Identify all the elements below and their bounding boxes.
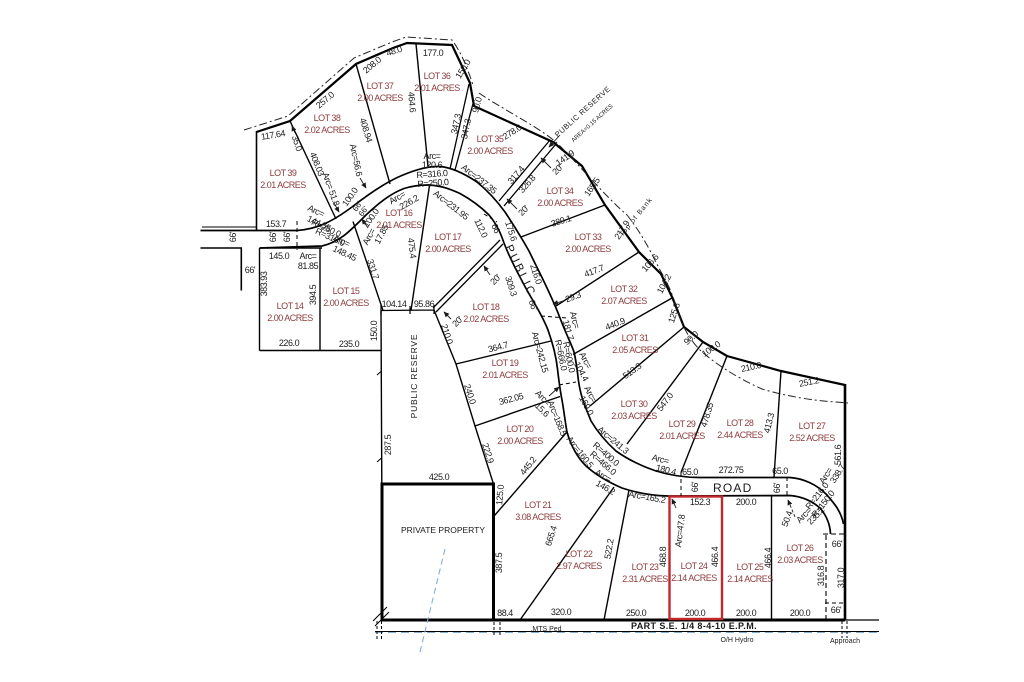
svg-text:466.4: 466.4 <box>710 546 720 567</box>
svg-text:316.8: 316.8 <box>816 565 826 586</box>
svg-text:LOT 21: LOT 21 <box>525 500 552 510</box>
svg-text:200.0: 200.0 <box>736 608 757 618</box>
svg-text:2.00 ACRES: 2.00 ACRES <box>267 313 313 323</box>
svg-text:PRIVATE PROPERTY: PRIVATE PROPERTY <box>401 525 485 535</box>
svg-text:561.6: 561.6 <box>833 444 843 465</box>
svg-text:2.03 ACRES: 2.03 ACRES <box>611 411 657 421</box>
svg-text:2.14 ACRES: 2.14 ACRES <box>727 574 773 584</box>
svg-text:LOT 15: LOT 15 <box>333 286 360 296</box>
svg-text:387.5: 387.5 <box>494 552 504 573</box>
svg-text:LOT 32: LOT 32 <box>611 284 638 294</box>
svg-text:145.0: 145.0 <box>269 251 290 261</box>
svg-text:2.00 ACRES: 2.00 ACRES <box>323 298 369 308</box>
svg-text:LOT 38: LOT 38 <box>314 113 341 123</box>
svg-text:464.6: 464.6 <box>406 91 418 113</box>
svg-text:LOT 39: LOT 39 <box>270 168 297 178</box>
svg-text:250.0: 250.0 <box>626 608 647 618</box>
svg-text:LOT 28: LOT 28 <box>727 418 754 428</box>
svg-text:LOT 14: LOT 14 <box>277 301 304 311</box>
svg-text:88.4: 88.4 <box>497 608 513 618</box>
svg-text:LOT 19: LOT 19 <box>492 358 519 368</box>
svg-text:66': 66' <box>268 231 278 242</box>
svg-text:2.01 ACRES: 2.01 ACRES <box>260 180 306 190</box>
svg-text:LOT 37: LOT 37 <box>367 81 394 91</box>
svg-text:LOT 23: LOT 23 <box>632 562 659 572</box>
svg-text:LOT 17: LOT 17 <box>435 232 462 242</box>
svg-text:66': 66' <box>831 605 842 615</box>
svg-text:104.14: 104.14 <box>382 299 407 309</box>
svg-text:466.4: 466.4 <box>763 547 773 568</box>
svg-text:LOT 22: LOT 22 <box>566 549 593 559</box>
svg-text:2.01 ACRES: 2.01 ACRES <box>414 83 460 93</box>
svg-text:2.00 ACRES: 2.00 ACRES <box>357 93 403 103</box>
svg-text:66': 66' <box>245 265 256 275</box>
svg-text:2.00 ACRES: 2.00 ACRES <box>565 244 611 254</box>
svg-text:LOT 26: LOT 26 <box>787 543 814 553</box>
svg-text:2.97 ACRES: 2.97 ACRES <box>556 561 602 571</box>
svg-text:394.5: 394.5 <box>308 284 318 305</box>
svg-text:200.0: 200.0 <box>685 608 706 618</box>
svg-text:425.0: 425.0 <box>429 472 450 482</box>
svg-text:150.0: 150.0 <box>369 320 379 341</box>
svg-text:200.0: 200.0 <box>790 608 811 618</box>
svg-text:LOT 33: LOT 33 <box>575 232 602 242</box>
svg-text:235.0: 235.0 <box>339 339 360 349</box>
svg-text:287.5: 287.5 <box>383 434 393 455</box>
svg-text:272.75: 272.75 <box>719 465 744 475</box>
svg-text:66': 66' <box>690 481 700 492</box>
svg-text:468.8: 468.8 <box>658 546 668 567</box>
svg-text:2.02 ACRES: 2.02 ACRES <box>463 314 509 324</box>
svg-text:81.85: 81.85 <box>298 261 319 271</box>
svg-text:66': 66' <box>228 231 238 242</box>
svg-text:95.86: 95.86 <box>414 299 435 309</box>
svg-text:153.7: 153.7 <box>266 219 287 229</box>
svg-text:200.0: 200.0 <box>736 497 757 507</box>
svg-text:LOT 35: LOT 35 <box>477 134 504 144</box>
svg-text:ROAD: ROAD <box>713 481 752 495</box>
svg-text:317.0: 317.0 <box>836 567 846 588</box>
svg-text:2.01 ACRES: 2.01 ACRES <box>659 431 705 441</box>
svg-text:LOT 30: LOT 30 <box>621 399 648 409</box>
svg-text:LOT 16: LOT 16 <box>386 208 413 218</box>
svg-text:PART S.E. 1/4 8-4-10 E.P.M.: PART S.E. 1/4 8-4-10 E.P.M. <box>631 621 757 631</box>
svg-text:LOT 31: LOT 31 <box>622 333 649 343</box>
svg-text:2.00 ACRES: 2.00 ACRES <box>467 146 513 156</box>
svg-text:2.52 ACRES: 2.52 ACRES <box>789 433 835 443</box>
svg-text:LOT 18: LOT 18 <box>473 302 500 312</box>
svg-text:383.93: 383.93 <box>259 271 269 296</box>
svg-text:125.0: 125.0 <box>494 484 506 506</box>
svg-text:2.44 ACRES: 2.44 ACRES <box>717 430 763 440</box>
svg-text:2.02 ACRES: 2.02 ACRES <box>304 125 350 135</box>
svg-text:66': 66' <box>282 231 292 242</box>
svg-text:PUBLIC RESERVE: PUBLIC RESERVE <box>409 334 419 419</box>
svg-text:LOT 36: LOT 36 <box>424 71 451 81</box>
svg-text:65.0: 65.0 <box>772 466 788 476</box>
svg-text:LOT 27: LOT 27 <box>799 421 826 431</box>
svg-text:O/H Hydro: O/H Hydro <box>720 637 753 644</box>
svg-text:2.00 ACRES: 2.00 ACRES <box>537 198 583 208</box>
svg-text:66': 66' <box>772 482 782 493</box>
svg-text:LOT 25: LOT 25 <box>737 562 764 572</box>
svg-text:226.0: 226.0 <box>279 338 300 348</box>
svg-text:LOT 34: LOT 34 <box>547 186 574 196</box>
svg-text:320.0: 320.0 <box>551 607 572 617</box>
svg-text:152.3: 152.3 <box>690 497 711 507</box>
svg-text:2.05 ACRES: 2.05 ACRES <box>612 345 658 355</box>
svg-text:2.07 ACRES: 2.07 ACRES <box>601 296 647 306</box>
svg-text:LOT 20: LOT 20 <box>507 424 534 434</box>
svg-text:66': 66' <box>832 539 843 549</box>
svg-text:2.00 ACRES: 2.00 ACRES <box>497 436 543 446</box>
svg-text:2.03 ACRES: 2.03 ACRES <box>777 555 823 565</box>
svg-text:.MTS Ped: .MTS Ped <box>530 626 561 633</box>
svg-text:2.01 ACRES: 2.01 ACRES <box>482 370 528 380</box>
svg-text:2.00 ACRES: 2.00 ACRES <box>425 244 471 254</box>
svg-text:65.0: 65.0 <box>682 467 698 477</box>
svg-text:LOT 24: LOT 24 <box>681 561 708 571</box>
svg-text:2.14 ACRES: 2.14 ACRES <box>671 573 717 583</box>
svg-text:177.0: 177.0 <box>423 48 444 58</box>
svg-text:LOT 29: LOT 29 <box>669 419 696 429</box>
svg-text:Arc=: Arc= <box>300 251 317 261</box>
svg-text:Approach: Approach <box>830 638 860 645</box>
svg-text:2.31 ACRES: 2.31 ACRES <box>622 574 668 584</box>
svg-text:3.08 ACRES: 3.08 ACRES <box>515 512 561 522</box>
